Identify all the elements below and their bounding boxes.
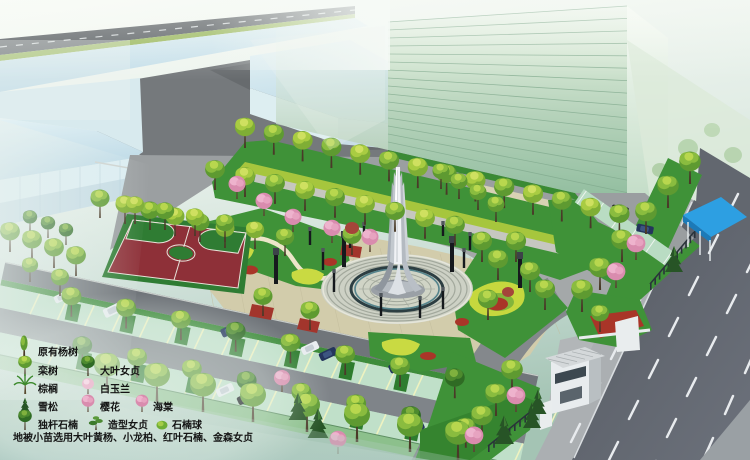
svg-text:雪松: 雪松 (38, 401, 58, 414)
svg-text:海棠: 海棠 (153, 401, 174, 414)
svg-text:白玉兰: 白玉兰 (100, 383, 130, 396)
svg-text:樱花: 樱花 (100, 401, 120, 414)
svg-text:地被小苗选用大叶黄杨、小龙柏、红叶石楠、金森女贞: 地被小苗选用大叶黄杨、小龙柏、红叶石楠、金森女贞 (13, 431, 253, 444)
svg-text:原有杨树: 原有杨树 (38, 346, 78, 359)
svg-text:大叶女贞: 大叶女贞 (100, 365, 140, 378)
svg-text:石楠球: 石楠球 (171, 419, 203, 432)
svg-text:栾树: 栾树 (37, 365, 58, 378)
svg-text:棕榈: 棕榈 (37, 383, 58, 396)
svg-text:造型女贞: 造型女贞 (108, 419, 148, 432)
svg-text:独杆石楠: 独杆石楠 (38, 419, 78, 432)
